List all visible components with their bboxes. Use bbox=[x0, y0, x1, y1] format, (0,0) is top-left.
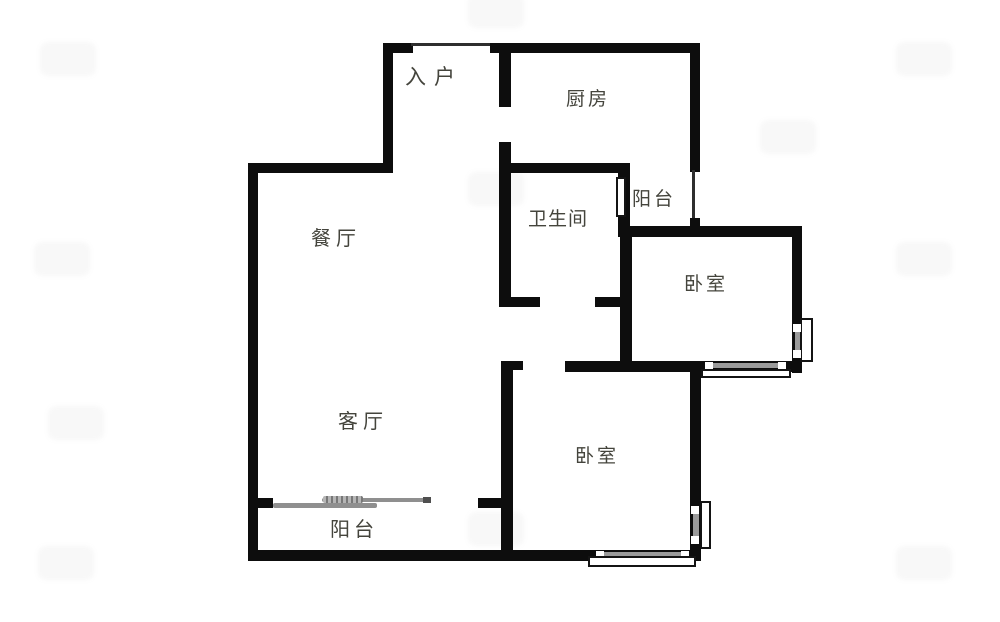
floor-plan-canvas: 入户 厨房 阳台 卫生间 卧室 餐厅 客厅 卧室 阳台 bbox=[0, 0, 1000, 622]
watermark-smudge bbox=[48, 406, 104, 440]
window-bathroom-balcony bbox=[616, 177, 626, 217]
watermark-smudge bbox=[760, 120, 816, 154]
window-bedroom-right-notch bbox=[793, 324, 801, 332]
window-bedroom-right-sill bbox=[800, 318, 813, 362]
wall-bathroom-right bbox=[620, 226, 632, 366]
window-bedroom2-right-notch bbox=[691, 506, 699, 514]
room-label-bedroom-bottom: 卧室 bbox=[575, 447, 619, 466]
window-bedroom2-bottom-sill bbox=[588, 556, 696, 567]
watermark-smudge bbox=[38, 546, 94, 580]
wall-bathroom-bottom-right bbox=[595, 297, 632, 307]
wall-living-right bbox=[501, 361, 513, 556]
room-label-balcony-top: 阳台 bbox=[632, 190, 676, 209]
window-bedroom2-right-sill bbox=[700, 501, 711, 549]
watermark-smudge bbox=[468, 512, 524, 546]
window-bedroom-bottom-glass bbox=[713, 363, 778, 368]
sliding-door-lower-panel bbox=[273, 503, 377, 508]
room-label-bathroom: 卫生间 bbox=[528, 210, 588, 229]
window-bedroom2-right-notch bbox=[691, 536, 699, 544]
wall-top-right-segment bbox=[490, 43, 700, 53]
room-label-dining: 餐厅 bbox=[311, 229, 361, 249]
sliding-door-overlap bbox=[323, 496, 363, 503]
wall-balcony-divider-left bbox=[248, 498, 273, 508]
watermark-smudge bbox=[468, 0, 524, 28]
wall-right-upper bbox=[690, 43, 700, 172]
watermark-smudge bbox=[896, 546, 952, 580]
balcony-top-railing bbox=[692, 170, 695, 222]
room-label-kitchen: 厨房 bbox=[566, 90, 610, 109]
wall-kitchen-bottom bbox=[499, 163, 630, 173]
wall-dining-top bbox=[248, 163, 393, 173]
window-bedroom2-right-glass bbox=[693, 514, 699, 536]
window-bedroom-right-notch bbox=[793, 350, 801, 358]
wall-balcony-divider-right bbox=[478, 498, 513, 508]
watermark-smudge bbox=[468, 172, 524, 206]
window-bedroom-right-glass bbox=[795, 332, 800, 350]
room-label-bedroom-right: 卧室 bbox=[684, 275, 728, 294]
wall-bedroom-right-top bbox=[618, 226, 802, 237]
window-bedroom-bottom-notch bbox=[778, 362, 786, 369]
window-bedroom-bottom-sill bbox=[701, 369, 791, 378]
wall-left-upper bbox=[383, 43, 393, 168]
room-label-balcony-bottom: 阳台 bbox=[330, 520, 378, 540]
entry-door-opening bbox=[411, 43, 490, 46]
sliding-door-handle bbox=[423, 497, 431, 503]
window-bedroom-bottom-notch bbox=[705, 362, 713, 369]
wall-bathroom-bottom-left bbox=[499, 297, 540, 307]
watermark-smudge bbox=[34, 242, 90, 276]
wall-kitchen-left-upper bbox=[499, 50, 511, 107]
watermark-smudge bbox=[896, 242, 952, 276]
watermark-smudge bbox=[896, 42, 952, 76]
watermark-smudge bbox=[40, 42, 96, 76]
room-label-living: 客厅 bbox=[338, 412, 388, 432]
room-label-entry: 入户 bbox=[405, 67, 463, 88]
